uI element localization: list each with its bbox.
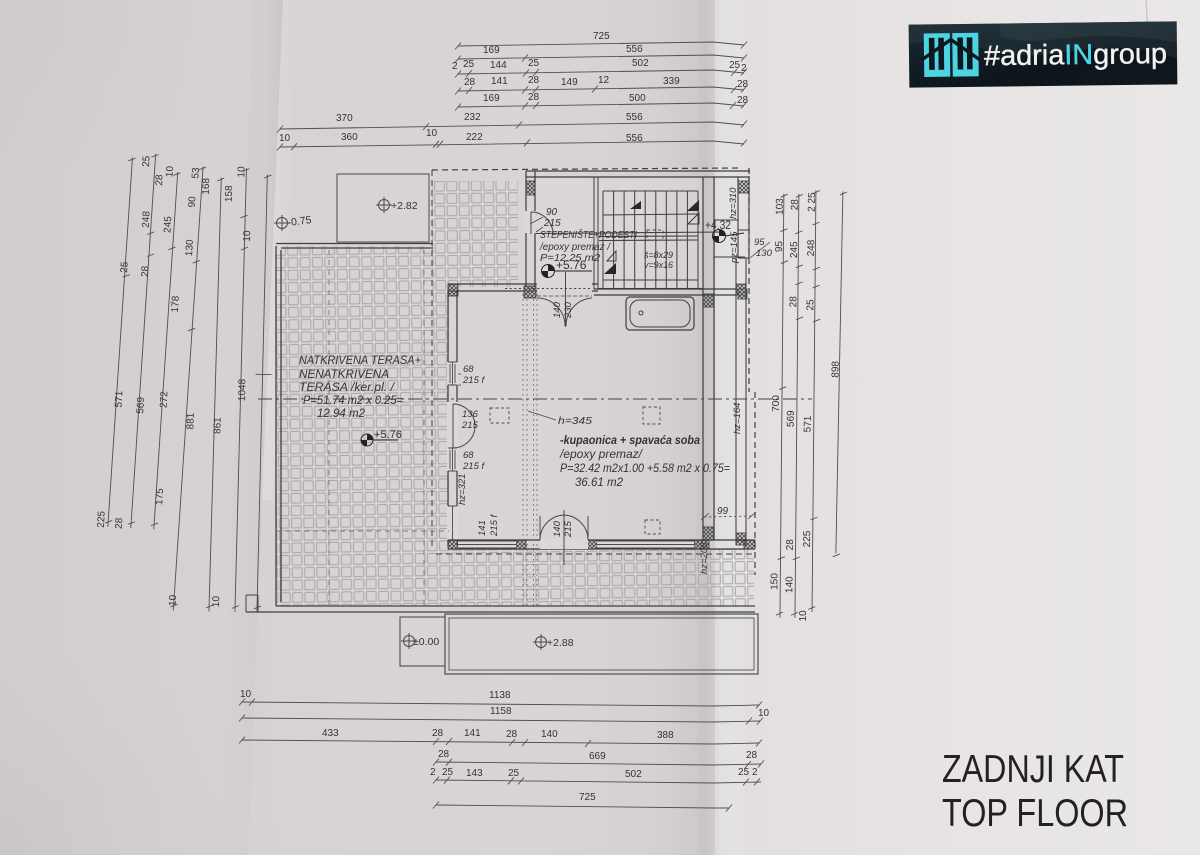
svg-text:502: 502: [625, 769, 642, 780]
svg-text:hz=321: hz=321: [457, 474, 468, 505]
svg-text:25: 25: [528, 58, 540, 69]
svg-text:1138: 1138: [489, 690, 511, 701]
svg-text:881: 881: [185, 412, 196, 429]
svg-text:140: 140: [784, 576, 795, 593]
svg-text:TERASA /ker.pl. /: TERASA /ker.pl. /: [299, 382, 396, 394]
svg-text:140: 140: [541, 729, 558, 740]
svg-text:388: 388: [657, 730, 674, 741]
svg-text:10: 10: [240, 689, 252, 700]
svg-text:215: 215: [563, 520, 574, 538]
svg-text:NATKRIVENA TERASA+: NATKRIVENA TERASA+: [299, 355, 421, 367]
svg-text:571: 571: [803, 415, 814, 432]
svg-text:232: 232: [464, 112, 481, 123]
svg-text:28: 28: [432, 728, 444, 739]
svg-text:+5.76: +5.76: [374, 429, 402, 441]
svg-text:36.61 m2: 36.61 m2: [575, 475, 623, 489]
svg-text:53: 53: [190, 167, 202, 179]
svg-text:222: 222: [466, 132, 483, 143]
svg-text:10: 10: [798, 610, 809, 622]
svg-text:556: 556: [626, 112, 643, 123]
svg-text:136: 136: [462, 409, 479, 420]
svg-text:28: 28: [140, 265, 152, 277]
svg-text:502: 502: [632, 58, 649, 69]
svg-text:10: 10: [236, 166, 247, 178]
svg-text:700: 700: [771, 395, 782, 412]
svg-text:68: 68: [463, 364, 474, 375]
svg-text:2: 2: [741, 63, 747, 74]
svg-text:569: 569: [135, 396, 147, 414]
svg-text:hz=164: hz=164: [732, 403, 743, 434]
svg-text:140: 140: [552, 520, 563, 537]
svg-text:725: 725: [593, 31, 610, 42]
svg-text:569: 569: [786, 410, 797, 427]
svg-text:215: 215: [543, 218, 561, 229]
svg-text:158: 158: [224, 185, 235, 202]
svg-text:2: 2: [430, 767, 436, 778]
svg-text:215 f: 215 f: [489, 514, 500, 537]
svg-text:STEPENIŠTE+PODESTI: STEPENIŠTE+PODESTI: [540, 228, 637, 241]
svg-text:28: 28: [737, 79, 749, 90]
svg-text:28: 28: [438, 749, 450, 760]
svg-text:169: 169: [483, 93, 500, 104]
svg-text:360: 360: [341, 132, 358, 143]
svg-text:103: 103: [775, 198, 786, 215]
svg-text:±0.00: ±0.00: [413, 636, 439, 648]
svg-text:10: 10: [426, 128, 438, 139]
svg-text:215 f: 215 f: [462, 375, 485, 386]
svg-text:P=12.25 m2: P=12.25 m2: [540, 252, 600, 264]
svg-text:130: 130: [184, 239, 196, 257]
svg-text:10: 10: [279, 133, 291, 144]
svg-text:99: 99: [717, 506, 729, 517]
svg-text:272: 272: [159, 391, 171, 409]
svg-text:pz=145: pz=145: [729, 231, 740, 264]
svg-text:hz=310: hz=310: [728, 187, 739, 219]
svg-text:P=51.74 m2 x 0.25=: P=51.74 m2 x 0.25=: [303, 395, 403, 407]
svg-text:175: 175: [154, 488, 166, 506]
svg-text:+2.88: +2.88: [547, 637, 574, 649]
svg-text:28: 28: [464, 77, 476, 88]
svg-text:169: 169: [483, 45, 500, 56]
svg-text:225: 225: [802, 530, 813, 547]
svg-text:861: 861: [212, 417, 223, 434]
svg-text:25: 25: [738, 767, 750, 778]
svg-text:1048: 1048: [237, 378, 248, 401]
svg-text:215 f: 215 f: [462, 461, 485, 472]
svg-text:NENATKRIVENA: NENATKRIVENA: [299, 369, 389, 381]
svg-text:+2.82: +2.82: [391, 200, 418, 212]
svg-text:2: 2: [752, 767, 758, 778]
svg-text:28: 28: [506, 729, 518, 740]
svg-text:215: 215: [461, 420, 479, 431]
svg-text:28: 28: [737, 95, 749, 106]
svg-text:25: 25: [805, 299, 816, 311]
svg-text:+4.32: +4.32: [705, 220, 731, 232]
svg-text:28: 28: [788, 296, 799, 308]
svg-text:10: 10: [758, 708, 770, 719]
svg-text:25: 25: [141, 155, 153, 167]
svg-text:h=345: h=345: [558, 415, 592, 427]
svg-text:141: 141: [491, 76, 508, 87]
svg-text:1158: 1158: [490, 706, 512, 717]
svg-text:28: 28: [746, 750, 758, 761]
svg-text:28: 28: [785, 539, 796, 551]
svg-text:68: 68: [463, 450, 474, 461]
svg-text:140: 140: [552, 301, 563, 318]
svg-text:28: 28: [528, 92, 540, 103]
svg-text:25: 25: [119, 261, 131, 273]
svg-text:25: 25: [729, 60, 741, 71]
svg-text:248: 248: [806, 239, 817, 256]
svg-text:245: 245: [162, 216, 174, 234]
svg-text:898: 898: [830, 361, 841, 378]
svg-text:141: 141: [477, 520, 488, 536]
svg-text:725: 725: [579, 792, 596, 803]
svg-text:130: 130: [756, 248, 773, 259]
svg-text:25: 25: [807, 192, 818, 204]
svg-text:669: 669: [589, 751, 606, 762]
svg-text:433: 433: [322, 728, 339, 739]
svg-text:10: 10: [211, 595, 222, 607]
svg-text:149: 149: [561, 77, 578, 88]
svg-text:10: 10: [168, 594, 180, 606]
svg-text:/epoxy premaz/: /epoxy premaz/: [559, 447, 644, 461]
svg-text:-kupaonica + spavaća soba: -kupaonica + spavaća soba: [560, 433, 700, 447]
svg-text:10: 10: [164, 165, 176, 177]
svg-text:10: 10: [242, 230, 253, 242]
svg-text:90: 90: [187, 196, 199, 208]
svg-text:500: 500: [629, 93, 646, 104]
svg-text:TOP FLOOR: TOP FLOOR: [942, 792, 1128, 835]
svg-text:2: 2: [452, 61, 458, 72]
svg-text:556: 556: [626, 133, 643, 144]
svg-text:25: 25: [508, 768, 520, 779]
svg-text:P=32.42 m2x1.00 +5.58 m2 x 0.7: P=32.42 m2x1.00 +5.58 m2 x 0.75=: [560, 461, 730, 475]
svg-text:245: 245: [789, 241, 800, 258]
svg-text:225: 225: [96, 510, 108, 528]
svg-text:556: 556: [626, 44, 643, 55]
svg-text:144: 144: [490, 60, 507, 71]
svg-text:#adriaINgroup: #adriaINgroup: [984, 38, 1167, 72]
svg-text:95: 95: [774, 240, 785, 252]
svg-text:95: 95: [754, 237, 765, 248]
svg-text:2: 2: [807, 206, 818, 212]
svg-text:178: 178: [170, 295, 182, 313]
svg-text:25: 25: [463, 59, 475, 70]
svg-text:28: 28: [114, 517, 126, 529]
svg-text:571: 571: [114, 390, 126, 408]
svg-text:168: 168: [201, 177, 212, 194]
svg-text:370: 370: [336, 113, 353, 124]
svg-text:141: 141: [464, 728, 481, 739]
svg-text:90: 90: [546, 207, 558, 218]
svg-text:12: 12: [598, 75, 610, 86]
svg-text:230: 230: [563, 301, 574, 319]
svg-text:150: 150: [769, 573, 780, 590]
svg-text:12.94 m2: 12.94 m2: [317, 408, 366, 420]
svg-text:28: 28: [528, 75, 540, 86]
svg-text:hz=208: hz=208: [699, 542, 710, 574]
svg-text:v=9x16: v=9x16: [644, 260, 674, 271]
svg-text:248: 248: [141, 210, 153, 228]
svg-text:28: 28: [790, 199, 801, 211]
svg-text:ZADNJI KAT: ZADNJI KAT: [942, 748, 1124, 791]
svg-text:339: 339: [663, 76, 680, 87]
svg-text:25: 25: [442, 767, 454, 778]
svg-text:143: 143: [466, 768, 483, 779]
